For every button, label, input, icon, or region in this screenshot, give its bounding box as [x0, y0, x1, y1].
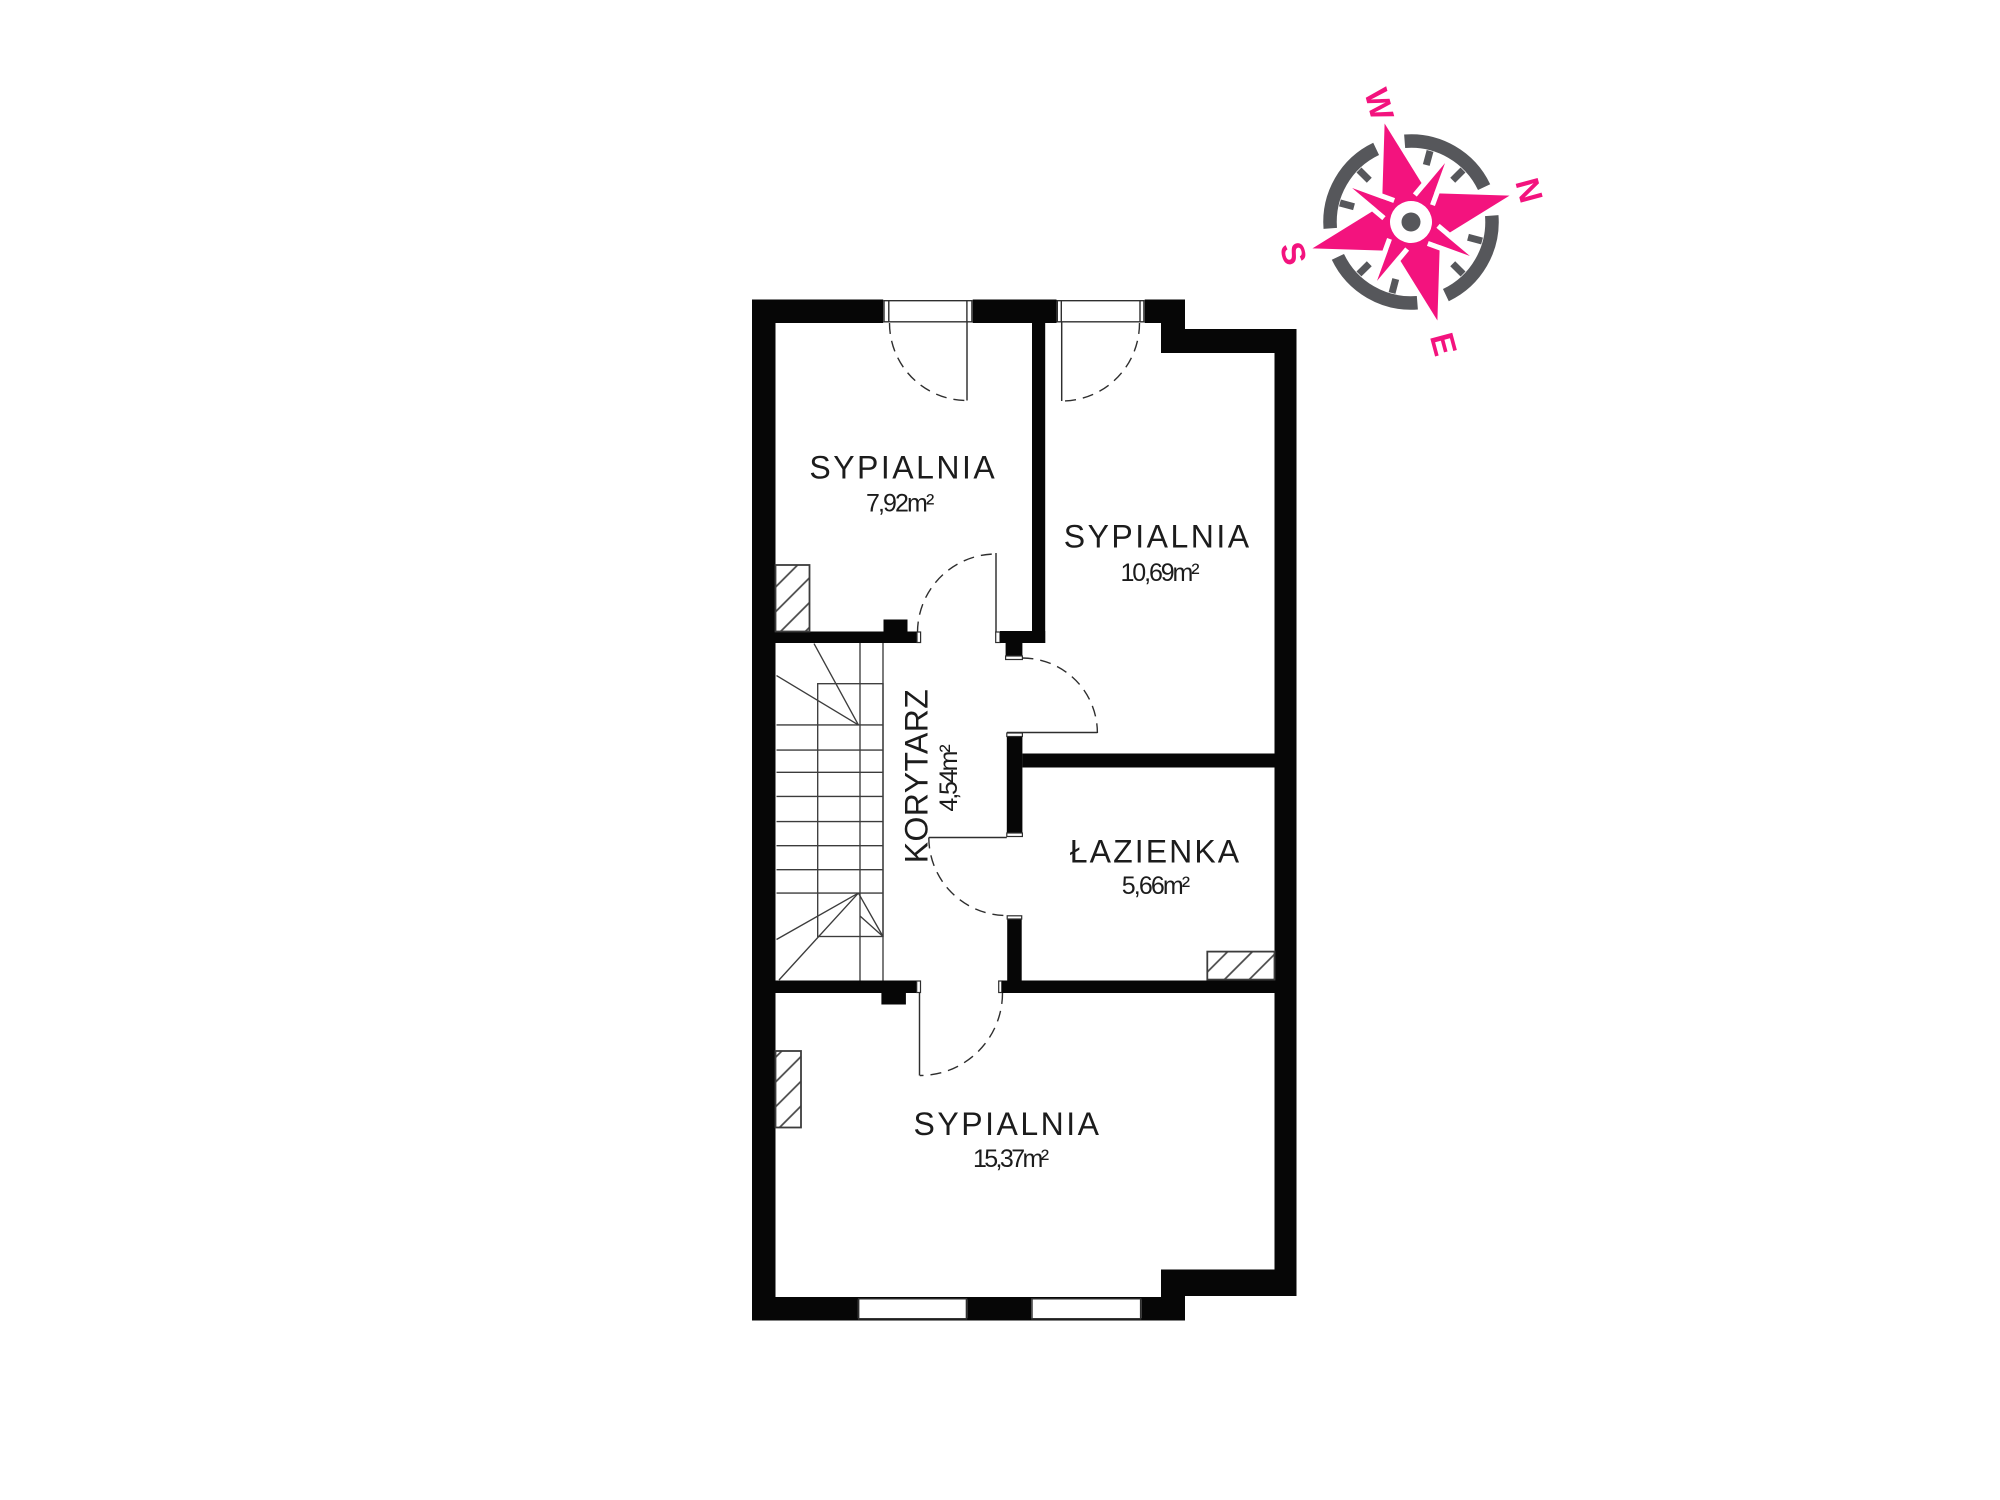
svg-text:15,37m²: 15,37m²	[973, 1145, 1049, 1173]
svg-text:SYPIALNIA: SYPIALNIA	[914, 1106, 1102, 1142]
svg-text:KORYTARZ: KORYTARZ	[899, 689, 935, 863]
svg-text:10,69m²: 10,69m²	[1120, 559, 1199, 587]
svg-text:SYPIALNIA: SYPIALNIA	[809, 450, 997, 486]
svg-text:ŁAZIENKA: ŁAZIENKA	[1070, 834, 1242, 870]
svg-text:7,92m²: 7,92m²	[866, 489, 934, 517]
svg-text:4,54m²: 4,54m²	[935, 745, 963, 812]
svg-text:SYPIALNIA: SYPIALNIA	[1064, 519, 1252, 555]
svg-text:5,66m²: 5,66m²	[1122, 872, 1190, 900]
